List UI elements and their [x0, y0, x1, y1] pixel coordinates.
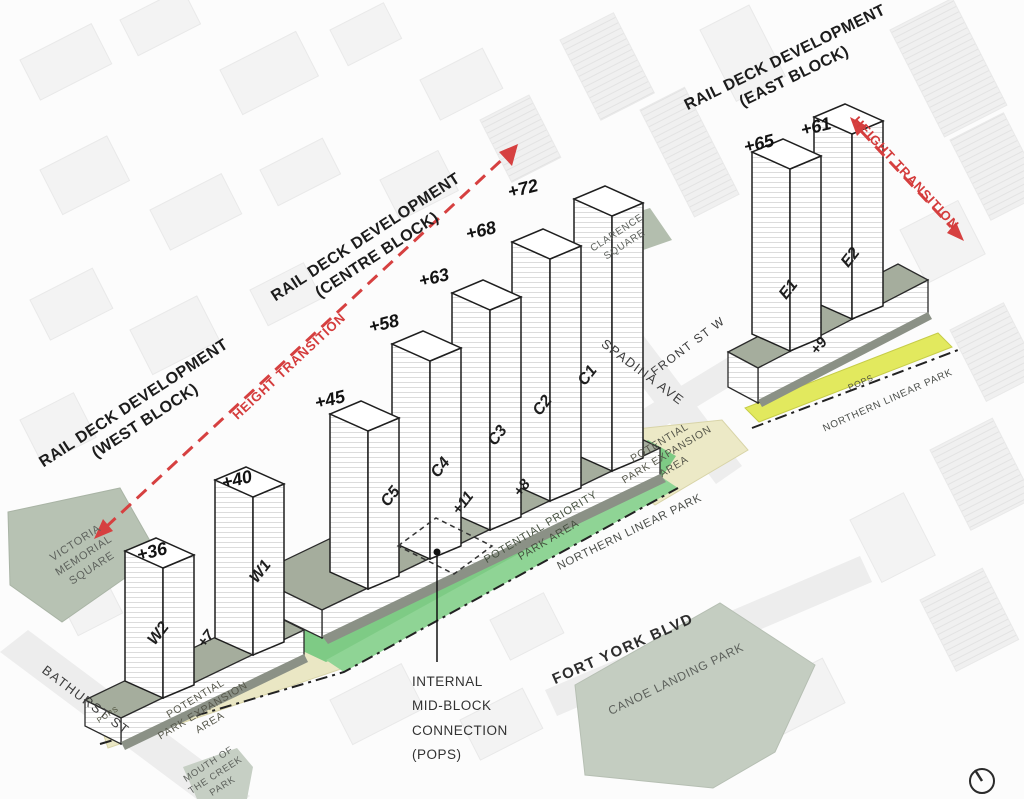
- tower-e1: [752, 139, 821, 351]
- tower-c2: [512, 229, 581, 501]
- tower-w1: [215, 467, 284, 655]
- rail-deck-development-diagram: RAIL DECK DEVELOPMENT(WEST BLOCK) RAIL D…: [0, 0, 1024, 799]
- internal-connection-note: INTERNAL MID-BLOCK CONNECTION (POPS): [412, 670, 508, 767]
- north-arrow-icon: [970, 769, 994, 793]
- canoe-landing-park-area: [575, 603, 815, 788]
- internal-connection-dot: [434, 549, 441, 556]
- tower-w2: [125, 538, 194, 698]
